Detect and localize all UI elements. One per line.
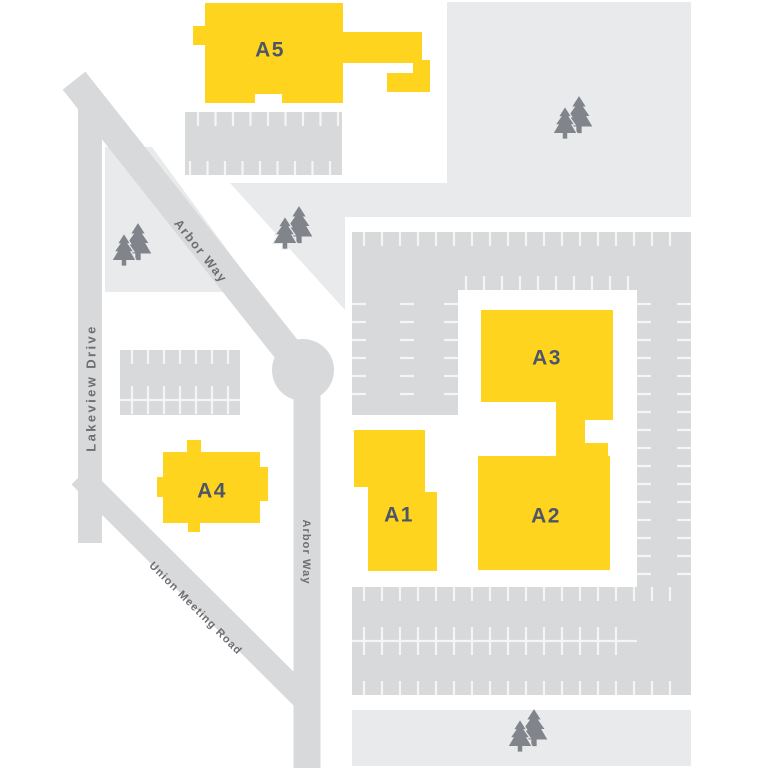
parking-lot-main-right-column — [637, 290, 691, 587]
site-map: Lakeview Drive Arbor Way Arbor Way Union… — [0, 0, 768, 768]
building-label-a5: A5 — [255, 38, 285, 61]
building-label-a1: A1 — [384, 503, 414, 526]
roundabout — [272, 339, 334, 401]
building-label-a4: A4 — [197, 479, 227, 502]
parking-lot-main-left-column — [352, 290, 458, 415]
road-label-lakeview-drive: Lakeview Drive — [84, 324, 99, 452]
site-map-canvas: Lakeview Drive Arbor Way Arbor Way Union… — [0, 0, 768, 768]
road-label-arbor-way-south: Arbor Way — [300, 519, 312, 584]
building-label-a3: A3 — [532, 346, 562, 369]
parking-lot-main-top-band — [352, 232, 691, 290]
building-label-a2: A2 — [531, 504, 561, 527]
